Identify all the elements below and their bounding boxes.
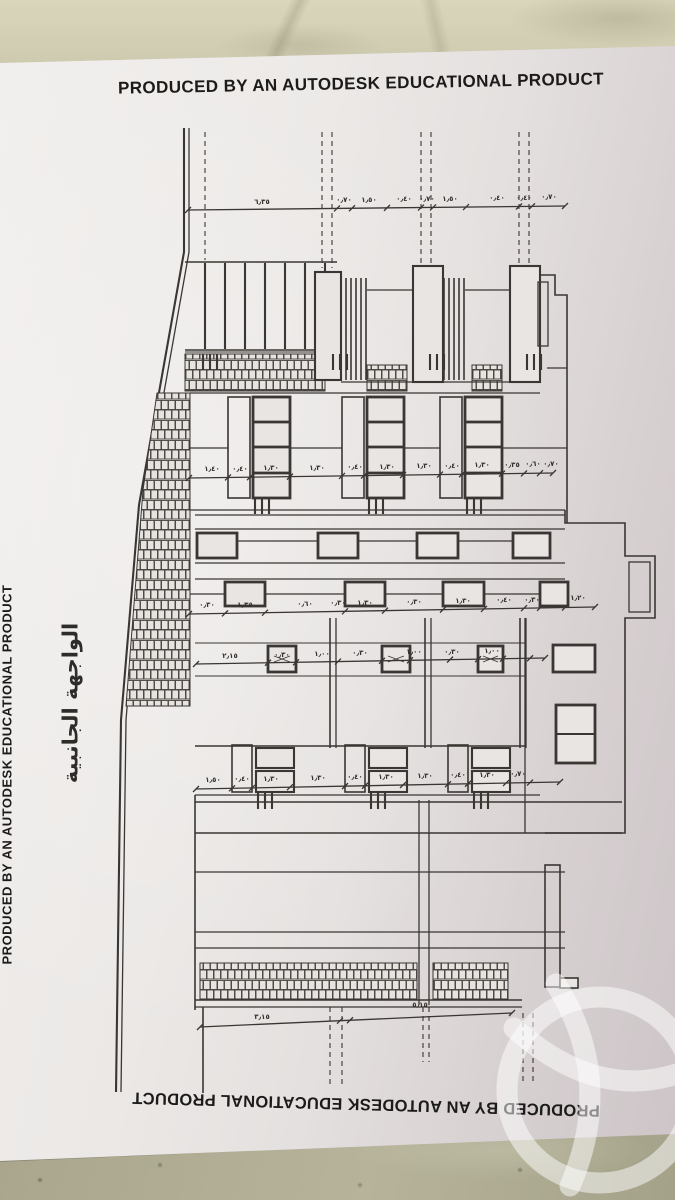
svg-text:٥٫١٥: ٥٫١٥ [412, 1001, 427, 1009]
svg-text:١٫٣٠: ١٫٣٠ [309, 464, 324, 472]
svg-text:١٫٣٠: ١٫٣٠ [474, 461, 489, 469]
elevation-drawing: ٦٫٣٥٠٫٧٠١٫٥٠٠٫٤٠٠٫٧٠١٫٥٠٠٫٤٠٠٫٤٠٠٫٧٠١٫٤٠… [0, 0, 675, 1200]
svg-text:٠٫٣٠: ٠٫٣٠ [352, 649, 367, 657]
svg-text:١٫٣٠: ١٫٣٠ [417, 772, 432, 780]
svg-text:١٫٥٠: ١٫٥٠ [442, 195, 457, 203]
svg-text:٠٫٣٥: ٠٫٣٥ [504, 461, 519, 469]
roof-towers [315, 266, 567, 523]
svg-text:٠٫٦٠: ٠٫٦٠ [525, 460, 540, 468]
svg-text:٠٫٤٠: ٠٫٤٠ [489, 194, 504, 202]
svg-text:٠٫٤٠: ٠٫٤٠ [444, 462, 459, 470]
svg-text:١٫٣٠: ١٫٣٠ [378, 773, 393, 781]
svg-text:٢٫١٥: ٢٫١٥ [222, 652, 237, 660]
svg-text:٠٫٤٠: ٠٫٤٠ [234, 775, 249, 783]
svg-text:٠٫٣٠: ٠٫٣٠ [199, 601, 214, 609]
svg-text:١٫٠٠: ١٫٠٠ [406, 648, 421, 656]
svg-text:١٫٣٠: ١٫٣٠ [379, 463, 394, 471]
strip-window-rows [190, 515, 568, 606]
svg-text:٠٫٤٠: ٠٫٤٠ [516, 194, 531, 202]
svg-text:٠٫٤٠: ٠٫٤٠ [496, 596, 511, 604]
svg-text:١٫٣٠: ١٫٣٠ [263, 464, 278, 472]
svg-text:٠٫٣٠: ٠٫٣٠ [274, 651, 289, 659]
svg-text:١٫٣٠: ١٫٣٠ [310, 774, 325, 782]
svg-text:١٫٣٠: ١٫٣٠ [357, 599, 372, 607]
svg-text:٠٫٤٠: ٠٫٤٠ [396, 195, 411, 203]
svg-text:٠٫٦٠: ٠٫٦٠ [297, 600, 312, 608]
svg-text:٠٫٣٠: ٠٫٣٠ [330, 599, 345, 607]
svg-text:١٫٠٠: ١٫٠٠ [314, 650, 329, 658]
svg-text:٠٫٧٠: ٠٫٧٠ [419, 195, 434, 203]
svg-text:١٫٠٠: ١٫٠٠ [484, 647, 499, 655]
svg-text:٦٫٣٥: ٦٫٣٥ [254, 198, 269, 206]
svg-text:٠٫٣٠: ٠٫٣٠ [444, 648, 459, 656]
svg-text:٠٫٤٠: ٠٫٤٠ [347, 463, 362, 471]
svg-text:٣٫١٥: ٣٫١٥ [254, 1013, 269, 1021]
paper-sheet: PRODUCED BY AN AUTODESK EDUCATIONAL PROD… [0, 0, 675, 1200]
svg-text:٠٫٧٠: ٠٫٧٠ [543, 460, 558, 468]
svg-text:٠٫٤٠: ٠٫٤٠ [232, 465, 247, 473]
floor-row [195, 618, 526, 748]
svg-text:٠٫٧٠: ٠٫٧٠ [541, 193, 556, 201]
upper-window-groups [190, 397, 567, 514]
svg-text:٠٫٧٠: ٠٫٧٠ [336, 196, 351, 204]
svg-text:٠٫٤٠: ٠٫٤٠ [450, 771, 465, 779]
svg-text:١٫٢٠: ١٫٢٠ [570, 594, 585, 602]
svg-text:١٫٣٠: ١٫٣٠ [263, 775, 278, 783]
svg-text:١٫٣٠: ١٫٣٠ [479, 771, 494, 779]
svg-text:١٫٣٠: ١٫٣٠ [455, 597, 470, 605]
svg-text:١٫٣٠: ١٫٣٠ [416, 462, 431, 470]
svg-text:٠٫٤٠: ٠٫٤٠ [347, 773, 362, 781]
svg-text:٠٫٧٠: ٠٫٧٠ [510, 770, 525, 778]
svg-text:٠٫٣٠: ٠٫٣٠ [524, 596, 539, 604]
svg-text:١٫٤٠: ١٫٤٠ [204, 465, 219, 473]
brick-hatch-areas [126, 354, 508, 999]
svg-text:٠٫٣٠: ٠٫٣٠ [406, 598, 421, 606]
svg-text:١٫٥٠: ١٫٥٠ [361, 196, 376, 204]
photo-scene: PRODUCED BY AN AUTODESK EDUCATIONAL PROD… [0, 0, 675, 1200]
svg-text:١٫٥٠: ١٫٥٠ [205, 776, 220, 784]
svg-text:١٫٣٥: ١٫٣٥ [237, 601, 252, 609]
